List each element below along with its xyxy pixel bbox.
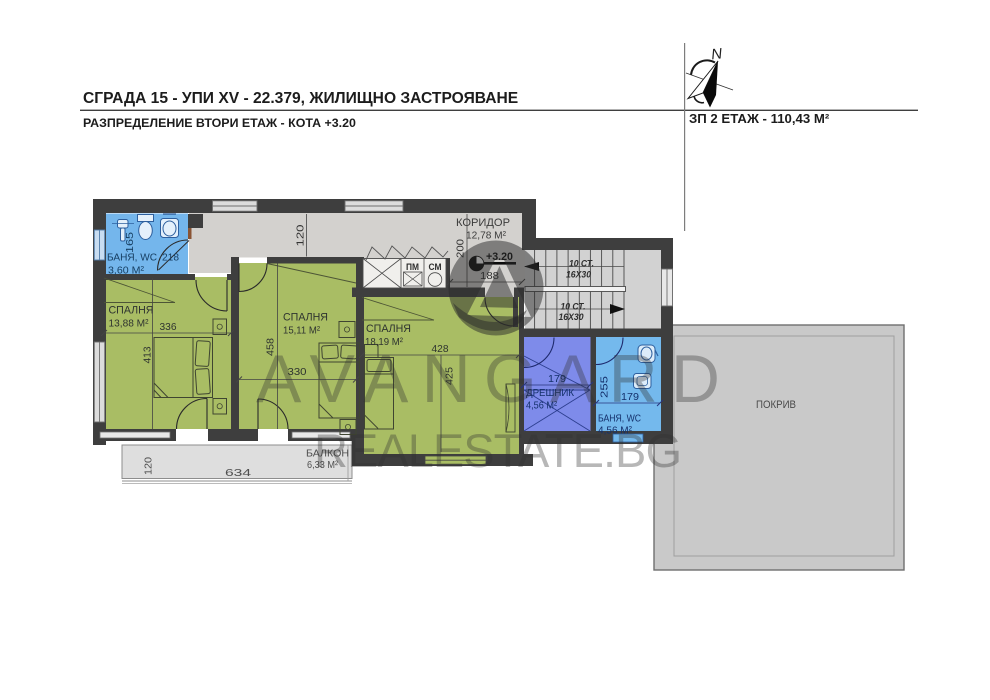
svg-text:КОРИДОР: КОРИДОР — [456, 217, 510, 229]
svg-text:336: 336 — [160, 322, 177, 333]
svg-text:120: 120 — [296, 224, 307, 246]
svg-text:СМ: СМ — [429, 262, 442, 272]
svg-text:413: 413 — [143, 346, 154, 363]
svg-text:10 СТ.: 10 СТ. — [569, 258, 594, 269]
svg-text:10 СТ.: 10 СТ. — [561, 301, 586, 312]
svg-text:16X30: 16X30 — [566, 269, 592, 280]
svg-text:ЗП 2 ЕТАЖ - 110,43 М²: ЗП 2 ЕТАЖ - 110,43 М² — [689, 111, 830, 126]
svg-text:REALESTATE.BG: REALESTATE.BG — [314, 424, 682, 477]
svg-text:БАНЯ, WC: БАНЯ, WC — [107, 253, 157, 264]
svg-text:15,11 М²: 15,11 М² — [283, 326, 320, 337]
svg-text:СПАЛНЯ: СПАЛНЯ — [109, 305, 154, 317]
svg-text:165: 165 — [125, 232, 136, 253]
svg-text:13,88 М²: 13,88 М² — [109, 319, 150, 330]
svg-text:3,60 М²: 3,60 М² — [108, 266, 145, 277]
svg-text:РАЗПРЕДЕЛЕНИЕ ВТОРИ ЕТАЖ - КОТ: РАЗПРЕДЕЛЕНИЕ ВТОРИ ЕТАЖ - КОТА +3.20 — [83, 116, 356, 130]
svg-text:12,78 М²: 12,78 М² — [466, 231, 507, 242]
svg-text:AVANGARD: AVANGARD — [256, 341, 720, 417]
svg-text:120: 120 — [144, 457, 155, 475]
svg-text:СПАЛНЯ: СПАЛНЯ — [283, 312, 328, 324]
svg-text:СГРАДА 15 - УПИ XV - 22.379, Ж: СГРАДА 15 - УПИ XV - 22.379, ЖИЛИЩНО ЗАС… — [83, 90, 518, 107]
svg-text:16X30: 16X30 — [559, 311, 585, 322]
svg-text:СПАЛНЯ: СПАЛНЯ — [366, 323, 411, 335]
svg-text:ПМ: ПМ — [406, 262, 419, 272]
svg-text:218: 218 — [162, 253, 179, 264]
svg-text:634: 634 — [225, 468, 251, 479]
svg-text:ПОКРИВ: ПОКРИВ — [756, 399, 796, 411]
